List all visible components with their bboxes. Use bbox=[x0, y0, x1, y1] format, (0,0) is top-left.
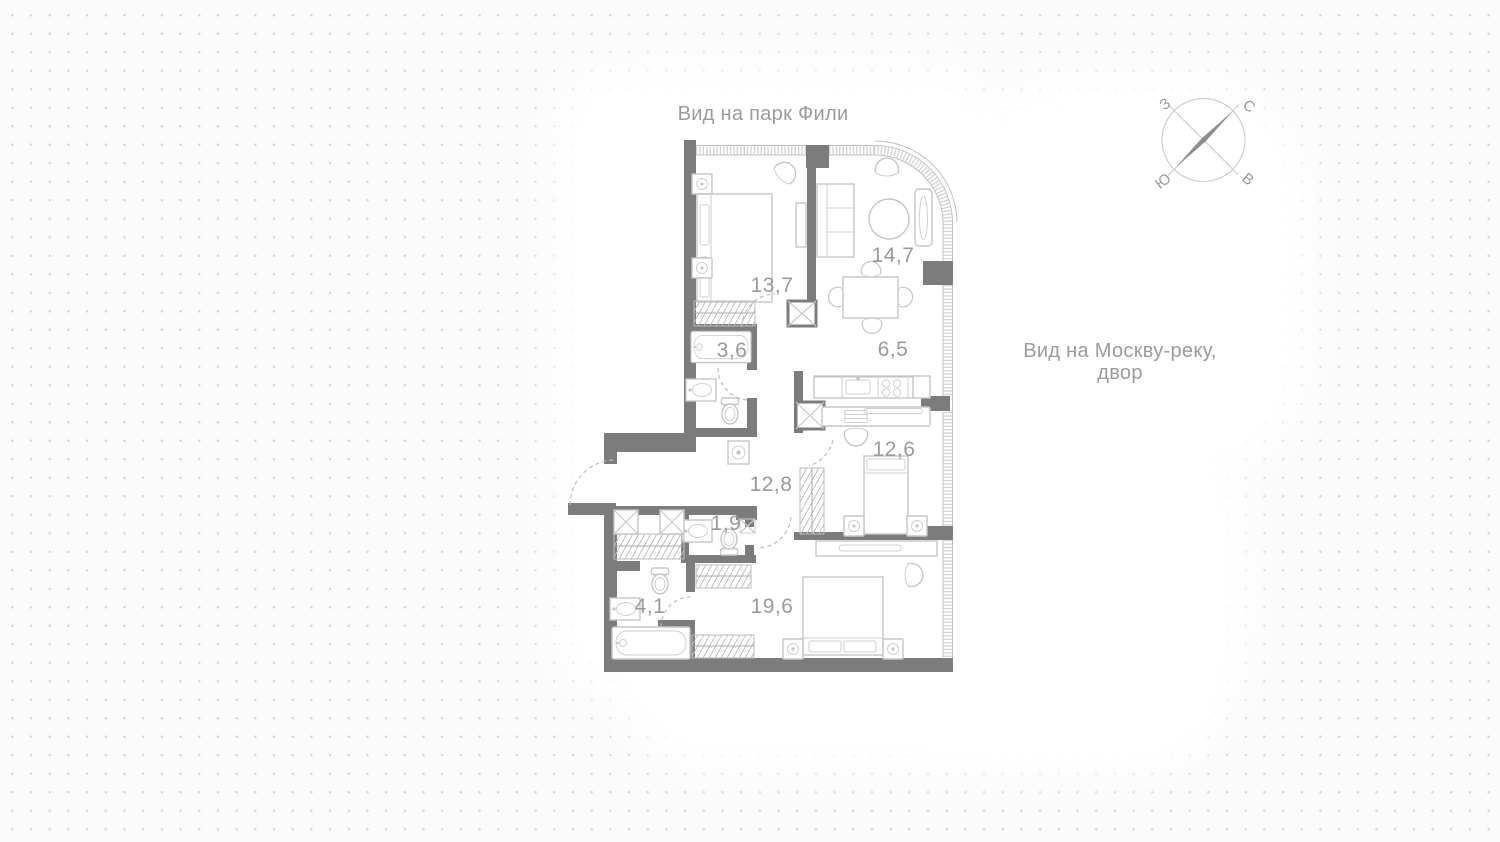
compass-south: Ю bbox=[1152, 170, 1174, 193]
area-label-bathroom-2: 4,1 bbox=[635, 595, 666, 618]
furniture-bedroom-2 bbox=[800, 456, 927, 536]
area-label-wc: 1,9 bbox=[711, 512, 742, 535]
area-label-bathroom-1: 3,6 bbox=[717, 339, 748, 362]
area-label-kitchen: 6,5 bbox=[878, 338, 909, 361]
area-label-hallway: 12,8 bbox=[750, 473, 793, 496]
compass-east: В bbox=[1239, 170, 1257, 190]
furniture-hallway bbox=[614, 510, 684, 559]
compass-north: С bbox=[1239, 96, 1258, 116]
area-label-bedroom-3: 19,6 bbox=[751, 595, 794, 618]
area-label-bedroom-1: 13,7 bbox=[751, 274, 794, 297]
area-label-bedroom-2: 12,6 bbox=[873, 438, 916, 461]
view-label-top: Вид на парк Фили bbox=[678, 103, 849, 125]
view-label-right-line2: двор bbox=[1097, 362, 1143, 384]
floor-plan: 13,7 14,7 3,6 6,5 12,6 12,8 1,9 4,1 19,6… bbox=[0, 0, 1500, 842]
area-label-living-room: 14,7 bbox=[872, 244, 915, 267]
furniture-kitchen bbox=[814, 376, 930, 446]
compass-icon: З С Ю В bbox=[1152, 95, 1258, 193]
view-label-right-line1: Вид на Москву-реку, bbox=[1023, 340, 1217, 362]
entrance-door-arc bbox=[570, 460, 615, 505]
compass-west: З bbox=[1156, 95, 1174, 114]
